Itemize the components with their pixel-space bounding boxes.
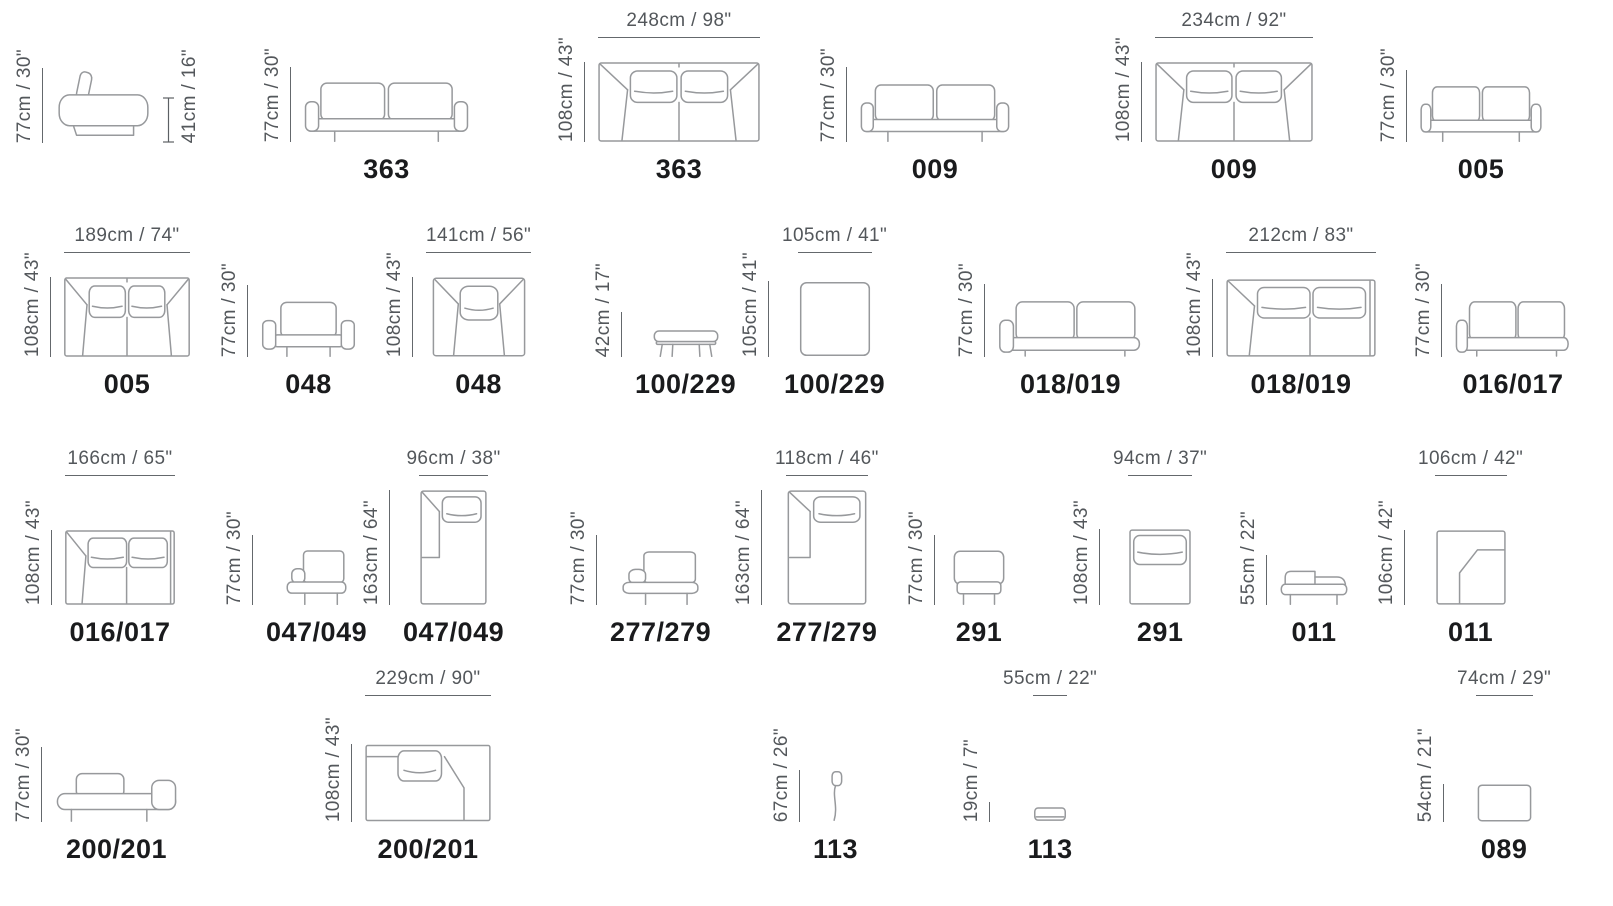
furniture-item: 234cm / 92" 108cm / 43" 009 — [1113, 10, 1313, 185]
height-dimension: 77cm / 30" — [224, 535, 253, 605]
furniture-item: 94cm / 37" 108cm / 43" 291 — [1071, 448, 1207, 648]
depth-dimension: 163cm / 64" — [733, 490, 762, 605]
model-number: 005 — [1458, 154, 1505, 185]
depth-dimension-label: 108cm / 43" — [323, 717, 345, 822]
sofa-top-view-drawing — [1226, 279, 1376, 357]
dimension-line — [584, 62, 585, 142]
chaise-top-view-drawing — [787, 490, 867, 605]
ottoman-top-view-drawing — [799, 281, 871, 357]
model-number: 200/201 — [377, 834, 478, 865]
sofa-front-view-drawing — [998, 299, 1143, 357]
height-dimension-label: 54cm / 21" — [1415, 728, 1437, 822]
height-dimension-label: 19cm / 7" — [961, 739, 983, 822]
model-number: 363 — [363, 154, 410, 185]
model-number: 200/201 — [66, 834, 167, 865]
dimension-line — [798, 252, 872, 253]
furniture-item: 77cm / 30" 016/017 — [1413, 225, 1571, 400]
furniture-item: 74cm / 29" 54cm / 21" 089 — [1415, 668, 1551, 865]
depth-dimension: 108cm / 43" — [384, 277, 413, 357]
width-dimension: 106cm / 42" — [1418, 448, 1523, 490]
width-dimension-label: 106cm / 42" — [1418, 448, 1523, 470]
width-dimension-label: 105cm / 41" — [782, 225, 887, 247]
furniture-item: 106cm / 42" 106cm / 42" 011 — [1376, 448, 1523, 648]
depth-dimension-label: 108cm / 43" — [1113, 37, 1135, 142]
width-dimension-label: 96cm / 38" — [406, 448, 500, 470]
depth-dimension: 108cm / 43" — [323, 744, 352, 822]
depth-dimension: 108cm / 43" — [22, 277, 51, 357]
dimension-line — [984, 284, 985, 357]
sofa-top-view-drawing — [598, 62, 760, 142]
width-dimension: 234cm / 92" — [1155, 10, 1313, 52]
sofa-top-view-drawing — [64, 277, 190, 357]
height-dimension: 77cm / 30" — [956, 284, 985, 357]
dimension-line — [1099, 529, 1100, 605]
width-dimension: 96cm / 38" — [403, 448, 504, 490]
depth-dimension: 108cm / 43" — [1071, 529, 1100, 605]
sofa-top-view-drawing — [65, 530, 175, 605]
height-dimension-label: 77cm / 30" — [219, 263, 241, 357]
height-dimension: 77cm / 30" — [13, 747, 42, 822]
width-dimension: 74cm / 29" — [1457, 668, 1551, 710]
depth-dimension-label: 108cm / 43" — [22, 252, 44, 357]
model-number: 009 — [912, 154, 959, 185]
furniture-item: 96cm / 38" 163cm / 64" 047/049 — [361, 448, 504, 648]
furniture-item: 77cm / 30" 047/049 — [224, 448, 367, 648]
height-dimension-label: 77cm / 30" — [262, 48, 284, 142]
corner-top-view-drawing — [1436, 530, 1506, 605]
depth-dimension: 108cm / 43" — [556, 62, 585, 142]
furniture-item: 105cm / 41" 105cm / 41" 100/229 — [740, 225, 887, 400]
height-dimension-label: 77cm / 30" — [1413, 263, 1435, 357]
dimension-line — [1226, 252, 1376, 253]
model-number: 291 — [956, 617, 1003, 648]
width-dimension-label: 189cm / 74" — [74, 225, 179, 247]
width-dimension-label: 118cm / 46" — [775, 448, 879, 470]
dimension-line — [1212, 279, 1213, 357]
height-dimension: 77cm / 30" — [219, 285, 248, 357]
seat-height-dimension-label: 41cm / 16" — [179, 49, 201, 143]
model-number: 005 — [104, 369, 151, 400]
sofa-front-view-drawing — [860, 82, 1010, 142]
model-number: 047/049 — [266, 617, 367, 648]
dimension-line — [768, 281, 769, 357]
dimension-line — [846, 67, 847, 142]
furniture-item: 189cm / 74" 108cm / 43" 005 — [22, 225, 190, 400]
model-number: 048 — [285, 369, 332, 400]
model-number: 018/019 — [1250, 369, 1351, 400]
sofa-side-view-drawing — [56, 68, 151, 143]
width-dimension: 189cm / 74" — [64, 225, 190, 267]
furniture-item: 248cm / 98" 108cm / 43" 363 — [556, 10, 760, 185]
furniture-item: 77cm / 30" 277/279 — [568, 448, 711, 648]
model-number: 018/019 — [1020, 369, 1121, 400]
height-dimension: 54cm / 21" — [1415, 784, 1444, 822]
height-dimension-label: 42cm / 17" — [593, 263, 615, 357]
armchair-front-view-drawing — [261, 300, 356, 357]
dimension-line — [41, 747, 42, 822]
furniture-item: 77cm / 30" 41cm / 16" — [14, 10, 201, 185]
width-dimension-label: 212cm / 83" — [1248, 225, 1353, 247]
model-number: 011 — [1448, 617, 1493, 648]
dimension-line — [50, 277, 51, 357]
depth-dimension-label: 108cm / 43" — [556, 37, 578, 142]
depth-dimension-label: 108cm / 43" — [1184, 252, 1206, 357]
depth-dimension-label: 105cm / 41" — [740, 252, 762, 357]
corner-side-view-drawing — [1280, 565, 1348, 605]
dimension-sheet: 77cm / 30" 41cm / 16" 77cm / 30" 363 248… — [0, 0, 1613, 906]
model-number: 363 — [656, 154, 703, 185]
dimension-line — [247, 285, 248, 357]
dimension-line — [786, 475, 868, 476]
chaise-front-view-drawing — [619, 550, 702, 605]
model-number: 009 — [1211, 154, 1258, 185]
dimension-line — [1155, 37, 1313, 38]
dimension-line — [426, 252, 531, 253]
sofa-front-view-drawing — [1420, 84, 1542, 142]
pouf-top-view-drawing — [1477, 784, 1532, 822]
width-dimension: 118cm / 46" — [775, 448, 879, 490]
armchair-top-view-drawing — [432, 277, 526, 357]
dimension-line — [1443, 784, 1444, 822]
height-dimension-label: 77cm / 30" — [1378, 48, 1400, 142]
height-dimension-label: 77cm / 30" — [956, 263, 978, 357]
lounge-side-view-drawing — [55, 762, 178, 822]
height-dimension-label: 77cm / 30" — [224, 511, 246, 605]
height-dimension-label: 55cm / 22" — [1238, 511, 1260, 605]
height-dimension: 77cm / 30" — [1378, 70, 1407, 142]
chaise-top-view-drawing — [420, 490, 487, 605]
headrest-side-view-drawing — [828, 770, 843, 822]
furniture-item: 55cm / 22" 011 — [1238, 448, 1348, 648]
width-dimension-label: 74cm / 29" — [1457, 668, 1551, 690]
model-number: 113 — [1028, 834, 1073, 865]
width-dimension: 212cm / 83" — [1226, 225, 1376, 267]
depth-dimension: 108cm / 43" — [1184, 279, 1213, 357]
depth-dimension: 105cm / 41" — [740, 281, 769, 357]
width-dimension: 94cm / 37" — [1113, 448, 1207, 490]
chair-top-view-drawing — [1129, 529, 1191, 605]
width-dimension: 229cm / 90" — [365, 668, 491, 710]
dimension-line — [65, 475, 175, 476]
width-dimension: 248cm / 98" — [598, 10, 760, 52]
furniture-item: 55cm / 22" 19cm / 7" 113 — [961, 668, 1097, 865]
dimension-line — [799, 770, 800, 822]
seat-height-dimension: 41cm / 16" — [163, 49, 201, 143]
furniture-item: 77cm / 30" 363 — [262, 10, 469, 185]
dimension-line — [1033, 695, 1067, 696]
depth-dimension-label: 108cm / 43" — [1071, 500, 1093, 605]
furniture-item: 118cm / 46" 163cm / 64" 277/279 — [733, 448, 879, 648]
height-dimension: 67cm / 26" — [771, 770, 800, 822]
dimension-line — [1266, 555, 1267, 605]
ottoman-side-view-drawing — [653, 327, 719, 357]
furniture-item: 77cm / 30" 200/201 — [13, 668, 178, 865]
furniture-item: 166cm / 65" 108cm / 43" 016/017 — [23, 448, 175, 648]
dimension-line — [42, 68, 43, 143]
height-dimension: 77cm / 30" — [818, 67, 847, 142]
dimension-line — [596, 535, 597, 605]
width-dimension: 55cm / 22" — [1003, 668, 1097, 710]
model-number: 089 — [1481, 834, 1528, 865]
width-dimension: 141cm / 56" — [426, 225, 531, 267]
model-number: 016/017 — [69, 617, 170, 648]
height-dimension-label: 77cm / 30" — [568, 511, 590, 605]
height-dimension-label: 77cm / 30" — [14, 49, 36, 143]
depth-dimension-label: 163cm / 64" — [733, 500, 755, 605]
height-dimension: 77cm / 30" — [14, 68, 43, 143]
sofa-front-view-drawing — [304, 80, 469, 142]
dimension-line — [290, 67, 291, 142]
depth-dimension: 108cm / 43" — [1113, 62, 1142, 142]
height-dimension: 77cm / 30" — [1413, 284, 1442, 357]
furniture-item: 141cm / 56" 108cm / 43" 048 — [384, 225, 531, 400]
dimension-line — [389, 490, 390, 605]
furniture-item: 77cm / 30" 018/019 — [956, 225, 1143, 400]
depth-dimension: 163cm / 64" — [361, 490, 390, 605]
dimension-line — [1404, 530, 1405, 605]
width-dimension: 105cm / 41" — [782, 225, 887, 267]
width-dimension-label: 94cm / 37" — [1113, 448, 1207, 470]
depth-dimension: 108cm / 43" — [23, 530, 52, 605]
furniture-item: 77cm / 30" 009 — [818, 10, 1010, 185]
dimension-line — [365, 695, 491, 696]
model-number: 113 — [813, 834, 858, 865]
lounge-top-view-drawing — [365, 744, 491, 822]
dimension-line — [621, 312, 622, 357]
dimension-line — [64, 252, 190, 253]
depth-dimension-label: 106cm / 42" — [1376, 500, 1398, 605]
height-dimension-label: 67cm / 26" — [771, 728, 793, 822]
height-dimension: 19cm / 7" — [961, 802, 990, 822]
measure-line — [163, 97, 174, 143]
sofa-front-view-drawing — [1455, 299, 1571, 357]
height-dimension-label: 77cm / 30" — [818, 48, 840, 142]
model-number: 048 — [455, 369, 502, 400]
dimension-line — [761, 490, 762, 605]
model-number: 011 — [1291, 617, 1336, 648]
chair-front-view-drawing — [948, 549, 1010, 605]
height-dimension: 42cm / 17" — [593, 312, 622, 357]
height-dimension-label: 77cm / 30" — [906, 511, 928, 605]
depth-dimension-label: 108cm / 43" — [384, 252, 406, 357]
width-dimension-label: 248cm / 98" — [626, 10, 731, 32]
width-dimension-label: 141cm / 56" — [426, 225, 531, 247]
model-number: 100/229 — [635, 369, 736, 400]
model-number: 047/049 — [403, 617, 504, 648]
depth-dimension-label: 163cm / 64" — [361, 500, 383, 605]
dimension-line — [1435, 475, 1507, 476]
headrest-front-view-drawing — [1034, 807, 1066, 822]
width-dimension: 166cm / 65" — [65, 448, 175, 490]
sofa-top-view-drawing — [1155, 62, 1313, 142]
dimension-line — [1441, 284, 1442, 357]
furniture-item: 77cm / 30" 048 — [219, 225, 356, 400]
height-dimension: 77cm / 30" — [568, 535, 597, 605]
furniture-item: 77cm / 30" 291 — [906, 448, 1010, 648]
width-dimension-label: 166cm / 65" — [67, 448, 172, 470]
model-number: 016/017 — [1462, 369, 1563, 400]
height-dimension-label: 77cm / 30" — [13, 728, 35, 822]
dimension-line — [1141, 62, 1142, 142]
model-number: 291 — [1137, 617, 1184, 648]
dimension-line — [1476, 695, 1533, 696]
model-number: 100/229 — [784, 369, 885, 400]
model-number: 277/279 — [776, 617, 877, 648]
height-dimension: 55cm / 22" — [1238, 555, 1267, 605]
dimension-line — [598, 37, 760, 38]
height-dimension: 77cm / 30" — [262, 67, 291, 142]
furniture-item: 77cm / 30" 005 — [1378, 10, 1542, 185]
dimension-line — [1406, 70, 1407, 142]
furniture-item: 42cm / 17" 100/229 — [593, 225, 736, 400]
furniture-item: 67cm / 26" 113 — [771, 668, 858, 865]
width-dimension-label: 55cm / 22" — [1003, 668, 1097, 690]
dimension-line — [419, 475, 488, 476]
depth-dimension-label: 108cm / 43" — [23, 500, 45, 605]
width-dimension-label: 234cm / 92" — [1181, 10, 1286, 32]
dimension-line — [252, 535, 253, 605]
furniture-item: 212cm / 83" 108cm / 43" 018/019 — [1184, 225, 1376, 400]
furniture-item: 229cm / 90" 108cm / 43" 200/201 — [323, 668, 491, 865]
dimension-line — [934, 535, 935, 605]
dimension-line — [51, 530, 52, 605]
depth-dimension: 106cm / 42" — [1376, 530, 1405, 605]
chaise-front-view-drawing — [284, 549, 349, 605]
model-number: 277/279 — [610, 617, 711, 648]
dimension-line — [989, 802, 990, 822]
dimension-line — [351, 744, 352, 822]
dimension-line — [412, 277, 413, 357]
dimension-line — [1128, 475, 1192, 476]
height-dimension: 77cm / 30" — [906, 535, 935, 605]
width-dimension-label: 229cm / 90" — [375, 668, 480, 690]
